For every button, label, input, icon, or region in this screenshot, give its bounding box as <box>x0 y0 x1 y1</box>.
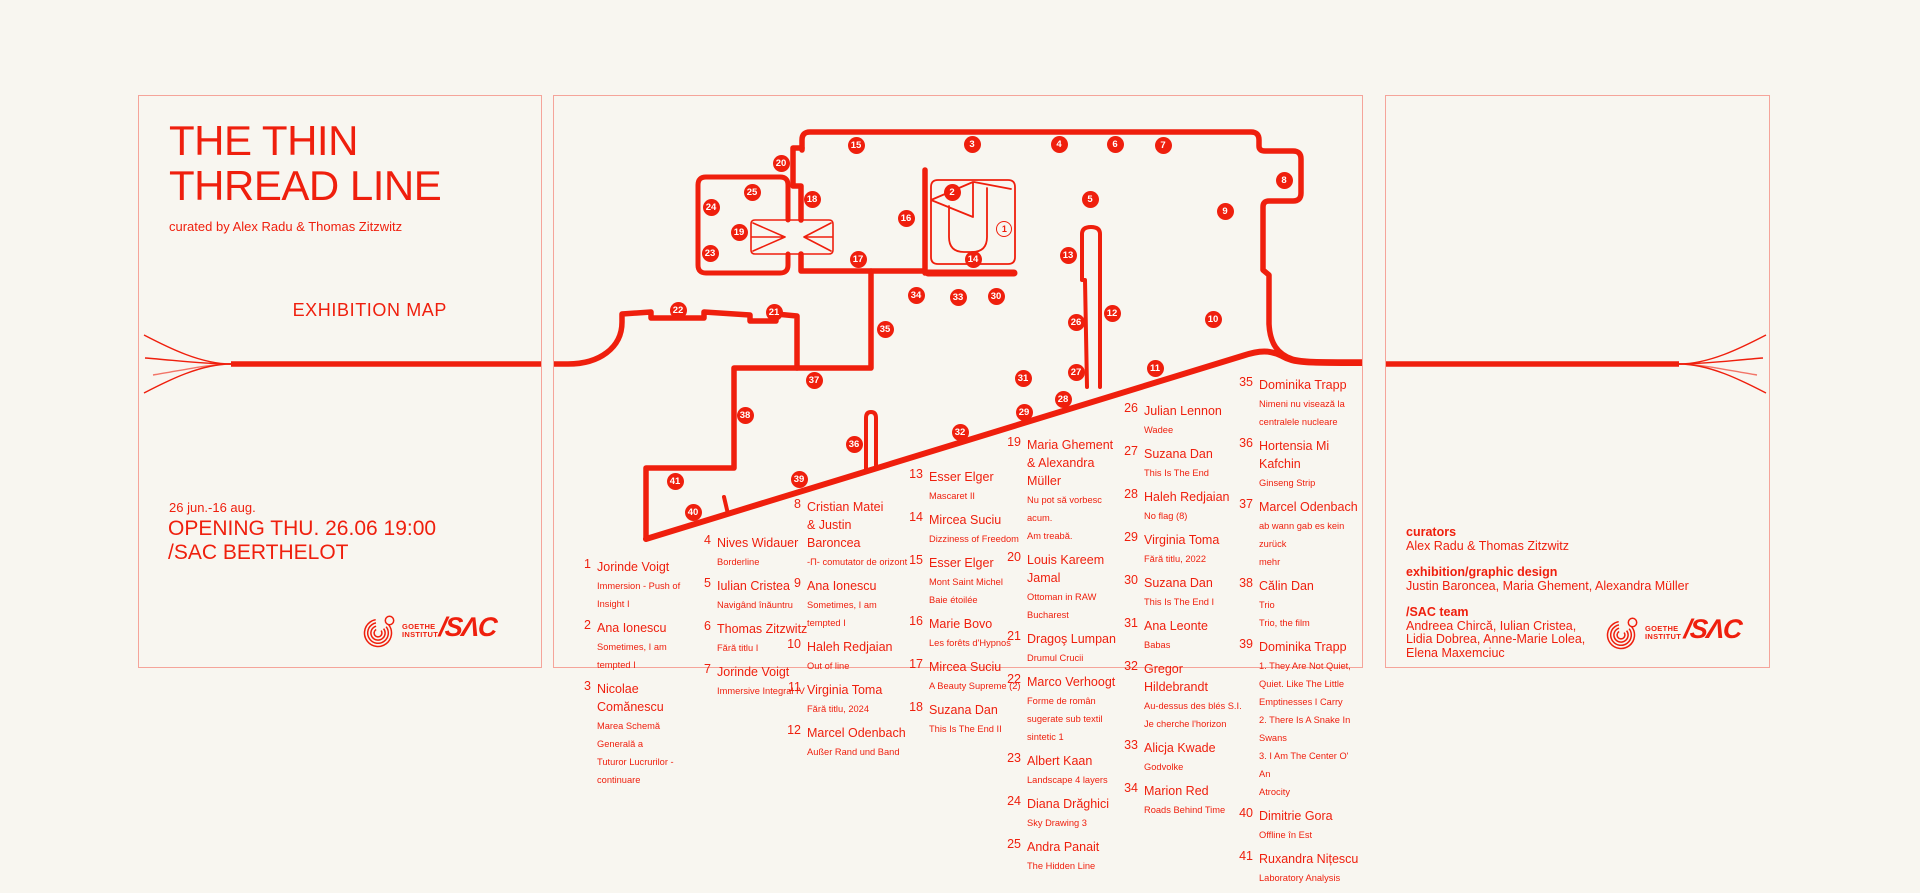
artist-number: 36 <box>1238 437 1253 491</box>
curators-block: curators Alex Radu & Thomas Zitzwitz <box>1406 526 1756 553</box>
artist-number: 12 <box>786 724 801 760</box>
artist-name: Ana Ionescu <box>597 621 667 635</box>
artist-name: Mircea Suciu <box>929 513 1001 527</box>
artist-number: 34 <box>1123 782 1138 818</box>
artist-name: Marie Bovo <box>929 617 992 631</box>
artwork-title: Sometimes, I am tempted I <box>807 600 877 628</box>
artist-entry-34: 34Marion RedRoads Behind Time <box>1123 782 1245 818</box>
artist-number: 40 <box>1238 807 1253 843</box>
artwork-title: Fără titlu I <box>717 643 758 653</box>
artist-entry-25: 25Andra PanaitThe Hidden Line <box>1006 838 1128 874</box>
artist-name: Jorinde Voigt <box>717 665 789 679</box>
artist-number: 31 <box>1123 617 1138 653</box>
left-panel: THE THIN THREAD LINE curated by Alex Rad… <box>138 95 542 668</box>
artist-number: 16 <box>908 615 923 651</box>
exhibition-title: THE THIN THREAD LINE <box>169 118 441 208</box>
artwork-title: No flag (8) <box>1144 511 1187 521</box>
artwork-title: This Is The End <box>1144 468 1209 478</box>
artist-number: 14 <box>908 511 923 547</box>
artist-name: Dragoş Lumpan <box>1027 632 1116 646</box>
artist-number: 28 <box>1123 488 1138 524</box>
artist-entry-23: 23Albert KaanLandscape 4 layers <box>1006 752 1128 788</box>
artwork-title: Sometimes, I am tempted I <box>597 642 667 670</box>
artwork-title: Immersion - Push of Insight I <box>597 581 680 609</box>
artist-entry-40: 40Dimitrie GoraOffline în Est <box>1238 807 1360 843</box>
artist-name: Maria Ghement & Alexandra Müller <box>1027 438 1113 488</box>
artist-name: Haleh Redjaian <box>807 640 892 654</box>
artist-number: 26 <box>1123 402 1138 438</box>
artist-number: 30 <box>1123 574 1138 610</box>
artist-number: 11 <box>786 681 801 717</box>
artwork-title: This Is The End I <box>1144 597 1214 607</box>
artist-name: Esser Elger <box>929 556 994 570</box>
exhibition-map-label: EXHIBITION MAP <box>293 300 447 321</box>
artist-number: 20 <box>1006 551 1021 623</box>
artist-number: 22 <box>1006 673 1021 745</box>
artist-entry-27: 27Suzana DanThis Is The End <box>1123 445 1245 481</box>
artist-entry-38: 38Călin DanTrio Trio, the film <box>1238 577 1360 631</box>
artist-name: Julian Lennon <box>1144 404 1222 418</box>
goethe-institut-icon <box>363 614 397 650</box>
artwork-title: Babas <box>1144 640 1170 650</box>
artist-entry-3: 3Nicolae ComănescuMarea Schemă Generală … <box>576 680 698 788</box>
artist-number: 37 <box>1238 498 1253 570</box>
artwork-title: -Π- comutator de orizont <box>807 557 907 567</box>
artwork-title: Out of line <box>807 661 849 671</box>
artist-name: Cristian Matei & Justin Baroncea <box>807 500 883 550</box>
artist-number: 15 <box>908 554 923 608</box>
artist-entry-41: 41Ruxandra NițescuLaboratory Analysis <box>1238 850 1360 886</box>
artwork-title: Mont Saint Michel Baie étoilée <box>929 577 1003 605</box>
artist-entry-2: 2Ana IonescuSometimes, I am tempted I <box>576 619 698 673</box>
artist-name: Marion Red <box>1144 784 1209 798</box>
artist-number: 39 <box>1238 638 1253 800</box>
artist-name: Ana Ionescu <box>807 579 877 593</box>
artist-entry-20: 20Louis Kareem JamalOttoman in RAW Bucha… <box>1006 551 1128 623</box>
artist-column-1: 1Jorinde VoigtImmersion - Push of Insigh… <box>576 558 698 795</box>
artist-number: 19 <box>1006 436 1021 544</box>
goethe-institut-icon <box>1606 616 1640 652</box>
artwork-title: Wadee <box>1144 425 1173 435</box>
artist-name: Iulian Cristea <box>717 579 790 593</box>
artwork-title: Marea Schemă Generală a Tuturor Lucruril… <box>597 721 674 785</box>
design-block: exhibition/graphic design Justin Baronce… <box>1406 566 1756 593</box>
exhibition-dates: 26 jun.-16 aug. <box>169 500 256 515</box>
artwork-title: Roads Behind Time <box>1144 805 1225 815</box>
artwork-title: Nimeni nu visează la centralele nucleare <box>1259 399 1345 427</box>
artist-entry-36: 36Hortensia Mi KafchinGinseng Strip <box>1238 437 1360 491</box>
artist-number: 13 <box>908 468 923 504</box>
artwork-title: Trio Trio, the film <box>1259 600 1310 628</box>
artist-number: 38 <box>1238 577 1253 631</box>
artwork-title: Au-dessus des blés S.I. Je cherche l'hor… <box>1144 701 1242 729</box>
artist-number: 4 <box>696 534 711 570</box>
design-label: exhibition/graphic design <box>1406 566 1756 580</box>
artist-name: Diana Drăghici <box>1027 797 1109 811</box>
artist-entry-10: 10Haleh RedjaianOut of line <box>786 638 908 674</box>
artist-name: Dimitrie Gora <box>1259 809 1333 823</box>
artist-name: Alicja Kwade <box>1144 741 1216 755</box>
curators-label: curators <box>1406 526 1756 540</box>
artist-entry-32: 32Gregor HildebrandtAu-dessus des blés S… <box>1123 660 1245 732</box>
artist-name: Albert Kaan <box>1027 754 1092 768</box>
artist-name: Louis Kareem Jamal <box>1027 553 1104 585</box>
artist-entry-9: 9Ana IonescuSometimes, I am tempted I <box>786 577 908 631</box>
thread-line-right-fray <box>1386 322 1769 406</box>
artist-entry-24: 24Diana DrăghiciSky Drawing 3 <box>1006 795 1128 831</box>
artwork-title: Ottoman in RAW Bucharest <box>1027 592 1096 620</box>
curators-names: Alex Radu & Thomas Zitzwitz <box>1406 540 1756 554</box>
artist-entry-11: 11Virginia TomaFără titlu, 2024 <box>786 681 908 717</box>
artist-number: 23 <box>1006 752 1021 788</box>
artist-number: 32 <box>1123 660 1138 732</box>
poster-canvas: THE THIN THREAD LINE curated by Alex Rad… <box>0 0 1920 768</box>
artist-name: Andra Panait <box>1027 840 1099 854</box>
artist-number: 33 <box>1123 739 1138 775</box>
artist-number: 17 <box>908 658 923 694</box>
artist-entry-21: 21Dragoş LumpanDrumul Crucii <box>1006 630 1128 666</box>
artist-name: Mircea Suciu <box>929 660 1001 674</box>
artist-name: Dominika Trapp <box>1259 640 1347 654</box>
artist-number: 24 <box>1006 795 1021 831</box>
artwork-title: Forme de român sugerate sub textil sinte… <box>1027 696 1102 742</box>
artist-name: Marcel Odenbach <box>807 726 906 740</box>
artist-name: Suzana Dan <box>1144 576 1213 590</box>
opening-info: OPENING THU. 26.06 19:00 /SAC BERTHELOT <box>168 517 436 565</box>
artist-entry-33: 33Alicja KwadeGodvolke <box>1123 739 1245 775</box>
curated-by-line: curated by Alex Radu & Thomas Zitzwitz <box>169 219 402 234</box>
artist-entry-1: 1Jorinde VoigtImmersion - Push of Insigh… <box>576 558 698 612</box>
artwork-title: Landscape 4 layers <box>1027 775 1108 785</box>
artwork-title: Außer Rand und Band <box>807 747 900 757</box>
artwork-title: Sky Drawing 3 <box>1027 818 1087 828</box>
artist-entry-22: 22Marco VerhoogtForme de român sugerate … <box>1006 673 1128 745</box>
artist-entry-26: 26Julian LennonWadee <box>1123 402 1245 438</box>
artwork-title: Navigând înăuntru <box>717 600 793 610</box>
artist-entry-12: 12Marcel OdenbachAußer Rand und Band <box>786 724 908 760</box>
artist-entry-19: 19Maria Ghement & Alexandra MüllerNu pot… <box>1006 436 1128 544</box>
artist-entry-35: 35Dominika TrappNimeni nu visează la cen… <box>1238 376 1360 430</box>
map-panel: 1234567891011121314151617181920212223242… <box>553 95 1363 668</box>
artist-entry-39: 39Dominika Trapp1. They Are Not Quiet, Q… <box>1238 638 1360 800</box>
artist-name: Marcel Odenbach <box>1259 500 1358 514</box>
artist-column-3: 8Cristian Matei & Justin Baroncea-Π- com… <box>786 498 908 767</box>
artist-name: Marco Verhoogt <box>1027 675 1115 689</box>
goethe-institut-label: GOETHE INSTITUT <box>1645 625 1681 641</box>
artist-number: 2 <box>576 619 591 673</box>
artist-entry-31: 31Ana LeonteBabas <box>1123 617 1245 653</box>
artist-column-7: 35Dominika TrappNimeni nu visează la cen… <box>1238 376 1360 893</box>
artist-name: Dominika Trapp <box>1259 378 1347 392</box>
artist-column-6: 26Julian LennonWadee27Suzana DanThis Is … <box>1123 402 1245 825</box>
artist-number: 35 <box>1238 376 1253 430</box>
artist-number: 41 <box>1238 850 1253 886</box>
artwork-title: Mascaret II <box>929 491 975 501</box>
artist-number: 6 <box>696 620 711 656</box>
artist-entry-30: 30Suzana DanThis Is The End I <box>1123 574 1245 610</box>
artwork-title: Drumul Crucii <box>1027 653 1083 663</box>
artwork-title: The Hidden Line <box>1027 861 1095 871</box>
artist-number: 27 <box>1123 445 1138 481</box>
artist-number: 25 <box>1006 838 1021 874</box>
artist-name: Virginia Toma <box>807 683 882 697</box>
artist-entry-29: 29Virginia TomaFără titlu, 2022 <box>1123 531 1245 567</box>
artwork-title: Les forêts d'Hypnos <box>929 638 1011 648</box>
artwork-title: ab wann gab es kein zurück mehr <box>1259 521 1344 567</box>
artist-number: 3 <box>576 680 591 788</box>
artist-name: Nicolae Comănescu <box>597 682 664 714</box>
artist-entry-8: 8Cristian Matei & Justin Baroncea-Π- com… <box>786 498 908 570</box>
right-panel: curators Alex Radu & Thomas Zitzwitz exh… <box>1385 95 1770 668</box>
artwork-title: Godvolke <box>1144 762 1183 772</box>
artist-entry-37: 37Marcel Odenbachab wann gab es kein zur… <box>1238 498 1360 570</box>
artist-number: 21 <box>1006 630 1021 666</box>
artwork-title: 1. They Are Not Quiet, Quiet. Like The L… <box>1259 661 1351 797</box>
artist-name: Gregor Hildebrandt <box>1144 662 1208 694</box>
artist-name: Jorinde Voigt <box>597 560 669 574</box>
artwork-title: This Is The End II <box>929 724 1002 734</box>
artwork-title: Offline în Est <box>1259 830 1312 840</box>
artwork-title: Borderline <box>717 557 759 567</box>
artist-name: Ana Leonte <box>1144 619 1208 633</box>
artwork-title: Nu pot să vorbesc acum. Am treabă. <box>1027 495 1102 541</box>
artist-number: 18 <box>908 701 923 737</box>
artwork-title: Ginseng Strip <box>1259 478 1315 488</box>
artist-number: 29 <box>1123 531 1138 567</box>
artwork-title: Fără titlu, 2024 <box>807 704 869 714</box>
artist-name: Ruxandra Nițescu <box>1259 852 1358 866</box>
artist-number: 7 <box>696 663 711 699</box>
artist-name: Hortensia Mi Kafchin <box>1259 439 1329 471</box>
credits-block: curators Alex Radu & Thomas Zitzwitz exh… <box>1406 526 1756 673</box>
artwork-title: Fără titlu, 2022 <box>1144 554 1206 564</box>
artist-number: 5 <box>696 577 711 613</box>
artist-number: 9 <box>786 577 801 631</box>
design-names: Justin Baroncea, Maria Ghement, Alexandr… <box>1406 580 1756 594</box>
thread-line-left-fray <box>139 322 541 406</box>
artist-name: Suzana Dan <box>929 703 998 717</box>
artist-number: 1 <box>576 558 591 612</box>
artist-name: Esser Elger <box>929 470 994 484</box>
artist-name: Virginia Toma <box>1144 533 1219 547</box>
artist-list: 1Jorinde VoigtImmersion - Push of Insigh… <box>554 96 1362 667</box>
artist-name: Haleh Redjaian <box>1144 490 1229 504</box>
sac-logo: /SΛC <box>439 612 496 643</box>
artist-number: 10 <box>786 638 801 674</box>
artist-column-5: 19Maria Ghement & Alexandra MüllerNu pot… <box>1006 436 1128 881</box>
artist-number: 8 <box>786 498 801 570</box>
sac-logo: /SΛC <box>1684 614 1741 645</box>
artist-name: Suzana Dan <box>1144 447 1213 461</box>
goethe-institut-label: GOETHE INSTITUT <box>402 623 438 639</box>
artist-entry-28: 28Haleh RedjaianNo flag (8) <box>1123 488 1245 524</box>
artwork-title: Laboratory Analysis <box>1259 873 1340 883</box>
artist-name: Călin Dan <box>1259 579 1314 593</box>
